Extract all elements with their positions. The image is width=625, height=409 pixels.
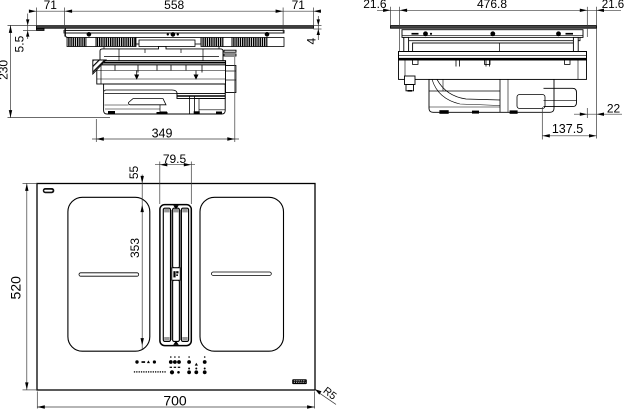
svg-text:55: 55 <box>127 166 141 180</box>
svg-text:137.5: 137.5 <box>552 122 583 136</box>
svg-text:700: 700 <box>163 392 187 408</box>
svg-text:5.5: 5.5 <box>12 35 26 52</box>
svg-text:349: 349 <box>152 126 173 140</box>
svg-text:R5: R5 <box>321 385 339 403</box>
svg-text:353: 353 <box>128 238 142 258</box>
svg-text:21.6: 21.6 <box>602 0 624 11</box>
svg-text:22: 22 <box>607 101 621 115</box>
svg-text:476.8: 476.8 <box>477 0 507 11</box>
svg-text:79.5: 79.5 <box>163 152 187 166</box>
svg-text:4: 4 <box>305 37 319 44</box>
svg-text:71: 71 <box>44 0 58 12</box>
svg-text:520: 520 <box>8 276 24 300</box>
svg-text:558: 558 <box>164 0 184 12</box>
svg-text:230: 230 <box>0 60 11 80</box>
svg-text:71: 71 <box>292 0 306 12</box>
svg-text:21.6: 21.6 <box>363 0 387 11</box>
